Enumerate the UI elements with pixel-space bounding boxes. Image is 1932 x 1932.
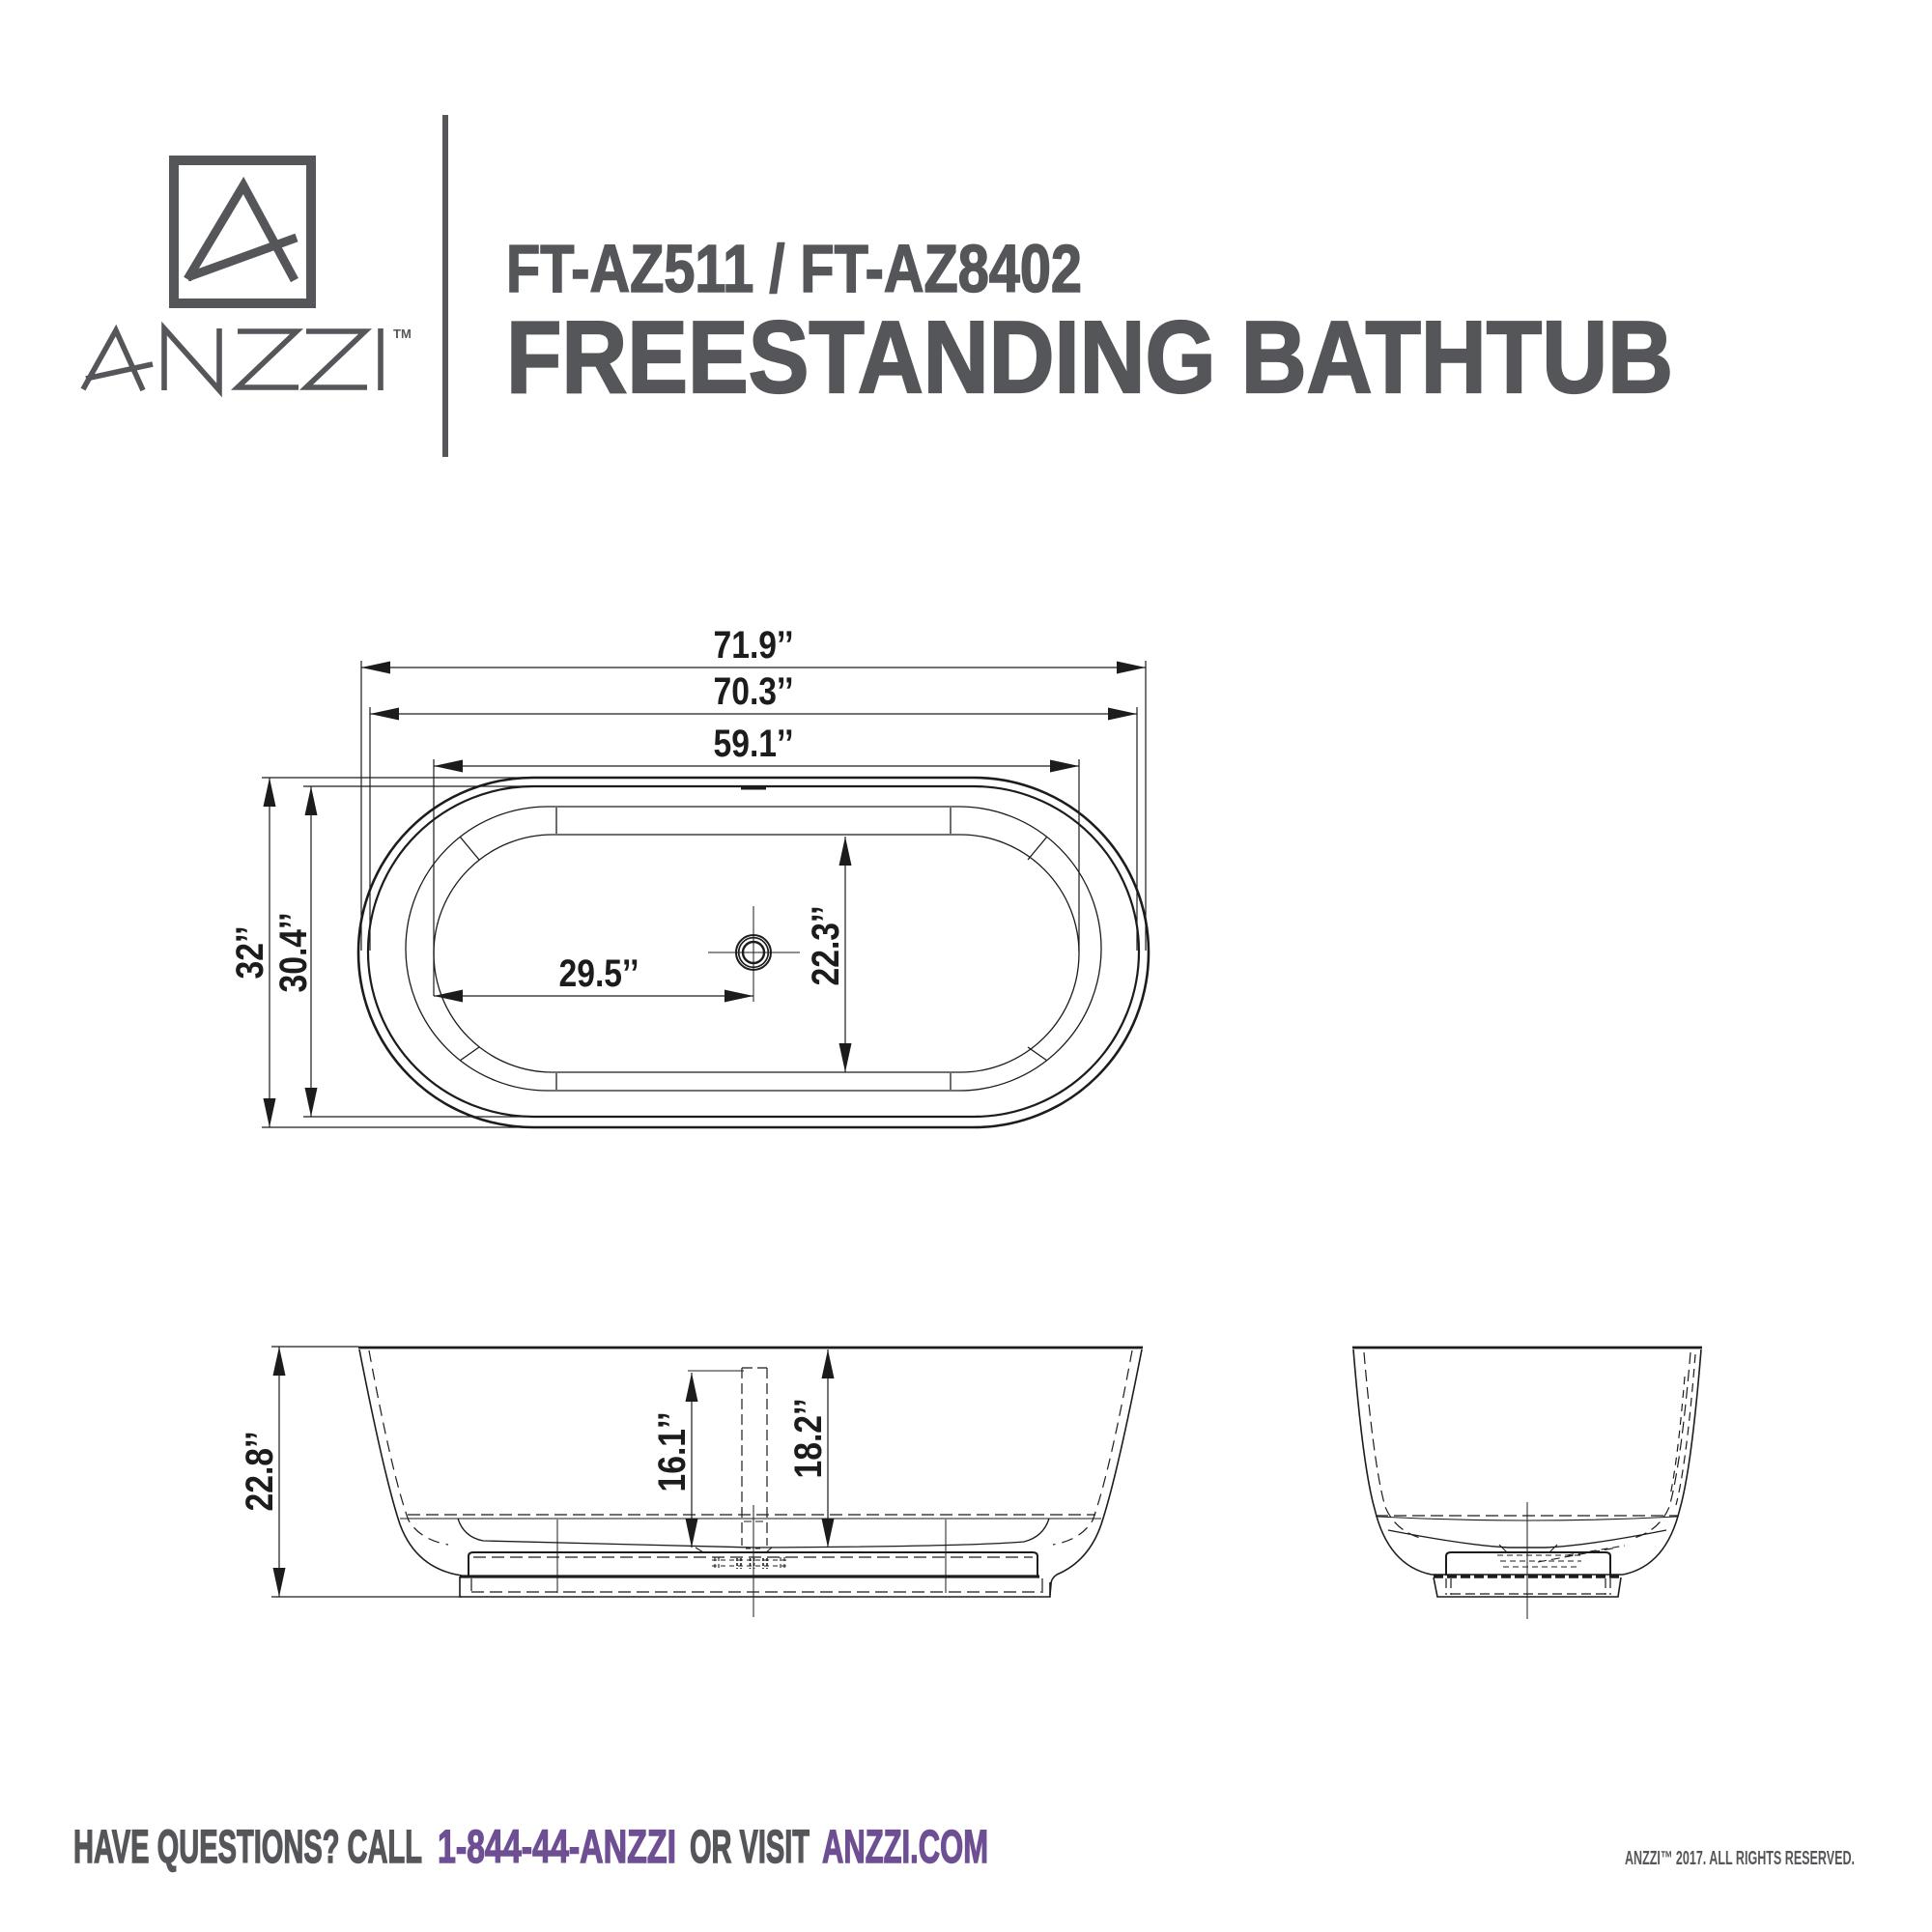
- svg-text:70.3’’: 70.3’’: [714, 670, 794, 713]
- svg-text:22.8’’: 22.8’’: [239, 1432, 281, 1512]
- svg-text:OR VISIT: OR VISIT: [690, 1822, 810, 1873]
- svg-text:HAVE QUESTIONS? CALL: HAVE QUESTIONS? CALL: [73, 1822, 422, 1873]
- svg-text:30.4’’: 30.4’’: [272, 913, 315, 993]
- svg-text:ANZZI.COM: ANZZI.COM: [822, 1822, 988, 1873]
- svg-text:18.2’’: 18.2’’: [787, 1399, 830, 1479]
- svg-text:TM: TM: [393, 327, 412, 341]
- svg-text:16.1’’: 16.1’’: [651, 1412, 694, 1492]
- svg-text:32’’: 32’’: [229, 926, 271, 980]
- svg-text:ANZZI™ 2017. ALL RIGHTS RESERV: ANZZI™ 2017. ALL RIGHTS RESERVED.: [1625, 1848, 1855, 1869]
- svg-text:FREESTANDING BATHTUB: FREESTANDING BATHTUB: [506, 300, 1673, 414]
- svg-text:FT-AZ511 / FT-AZ8402: FT-AZ511 / FT-AZ8402: [506, 231, 1082, 306]
- svg-text:22.3’’: 22.3’’: [805, 906, 847, 986]
- svg-text:71.9’’: 71.9’’: [714, 624, 794, 667]
- svg-text:29.5’’: 29.5’’: [559, 952, 639, 995]
- svg-text:59.1’’: 59.1’’: [714, 723, 794, 765]
- svg-text:1-844-44-ANZZI: 1-844-44-ANZZI: [438, 1822, 676, 1873]
